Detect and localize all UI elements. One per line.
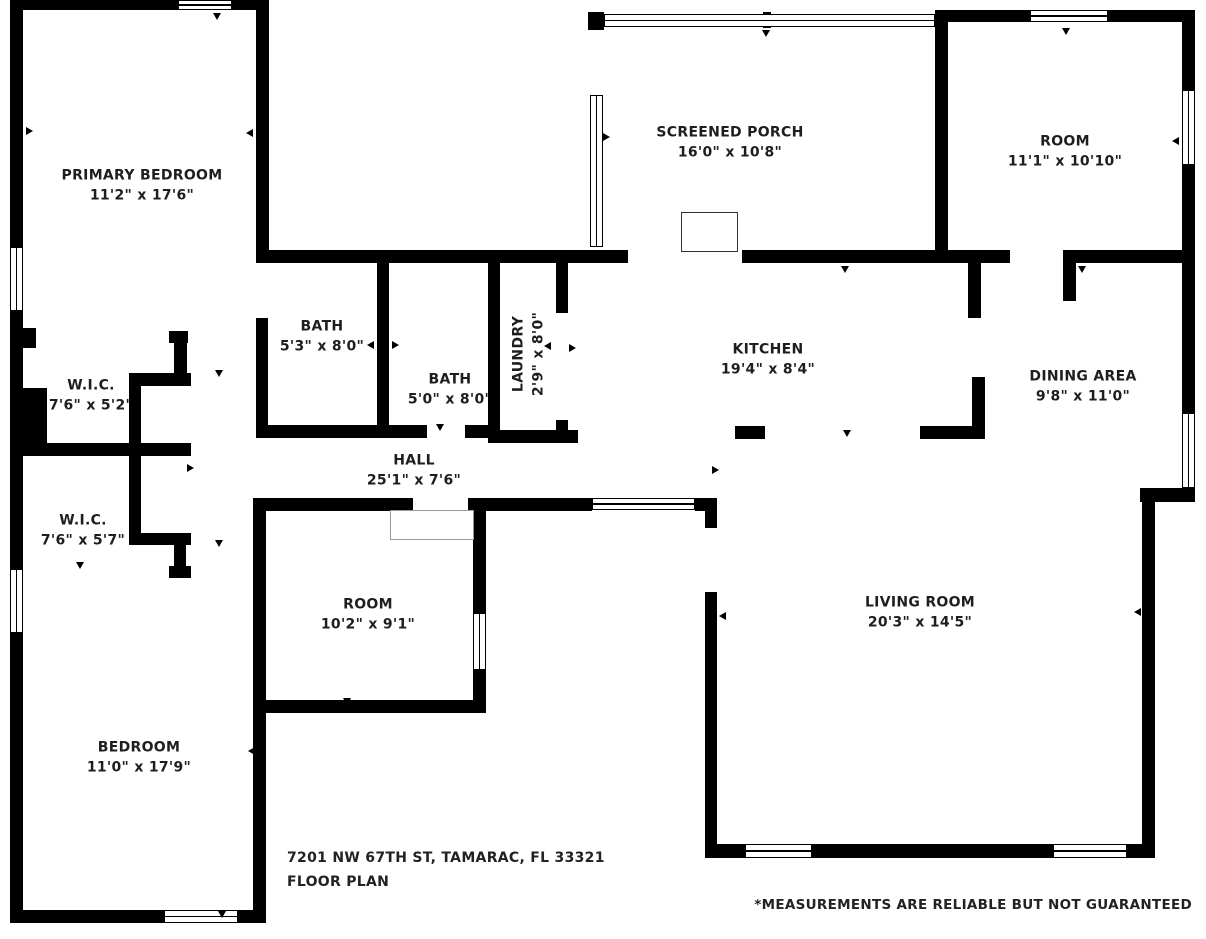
- door-marker: [392, 341, 399, 349]
- room-label-dining-area: DINING AREA 9'8" x 11'0": [1029, 367, 1136, 406]
- room-label-bath-1: BATH 5'3" x 8'0": [280, 317, 364, 356]
- plan-title: FLOOR PLAN: [287, 871, 605, 895]
- wall-segment: [377, 425, 427, 438]
- wall-segment: [129, 533, 191, 545]
- room-dims: 11'0" x 17'9": [87, 758, 191, 778]
- window: [10, 569, 23, 633]
- room-label-hall: HALL 25'1" x 7'6": [367, 451, 461, 490]
- wall-segment: [10, 0, 178, 10]
- wall-segment: [705, 592, 717, 858]
- door-marker: [248, 747, 255, 755]
- window: [178, 0, 232, 10]
- room-label-living-room: LIVING ROOM 20'3" x 14'5": [865, 593, 975, 632]
- door-marker: [215, 370, 223, 377]
- room-dims: 2'9" x 8'0": [529, 312, 549, 396]
- room-name: PRIMARY BEDROOM: [62, 166, 223, 186]
- door-marker: [1134, 608, 1141, 616]
- room-dims: 10'2" x 9'1": [321, 615, 415, 635]
- room-name: HALL: [393, 451, 435, 471]
- room-label-room-mid: ROOM 10'2" x 9'1": [321, 595, 415, 634]
- wall-segment: [465, 425, 488, 438]
- room-name: LIVING ROOM: [865, 593, 975, 613]
- wall-segment: [1140, 488, 1195, 502]
- window: [1053, 844, 1127, 858]
- room-name: SCREENED PORCH: [656, 123, 803, 143]
- wall-segment: [705, 498, 717, 528]
- room-label-screened-porch: SCREENED PORCH 16'0" x 10'8": [656, 123, 803, 162]
- wall-segment: [10, 448, 23, 569]
- wall-segment: [377, 263, 389, 430]
- door-marker: [246, 129, 253, 137]
- room-dims: 5'0" x 8'0": [408, 390, 492, 410]
- door-marker: [367, 341, 374, 349]
- wall-segment: [169, 566, 191, 578]
- wall-segment: [935, 10, 948, 250]
- room-dims: 7'6" x 5'2": [49, 396, 133, 416]
- wall-segment: [1142, 502, 1155, 857]
- room-label-laundry: LAUNDRY 2'9" x 8'0": [509, 312, 548, 396]
- room-dims: 20'3" x 14'5": [868, 613, 972, 633]
- room-label-bedroom: BEDROOM 11'0" x 17'9": [87, 738, 191, 777]
- door-marker: [1062, 28, 1070, 35]
- wall-segment: [920, 426, 985, 439]
- wall-segment: [1182, 263, 1195, 413]
- room-dims: 11'1" x 10'10": [1008, 152, 1122, 172]
- wall-segment: [1182, 10, 1195, 90]
- wall-segment: [253, 700, 266, 923]
- wall-segment: [256, 0, 269, 250]
- wall-segment: [253, 498, 413, 511]
- room-name: BATH: [429, 370, 472, 390]
- room-name: ROOM: [1040, 132, 1090, 152]
- door-marker: [712, 466, 719, 474]
- porch-step-outline: [681, 212, 738, 252]
- window: [745, 844, 812, 858]
- wall-segment: [253, 498, 266, 712]
- room-name: DINING AREA: [1029, 367, 1136, 387]
- wall-segment: [468, 498, 592, 511]
- wall-segment: [10, 910, 167, 923]
- floor-plan-canvas: PRIMARY BEDROOM 11'2" x 17'6" SCREENED P…: [0, 0, 1206, 939]
- door-marker: [522, 430, 530, 437]
- window: [473, 613, 486, 670]
- room-label-primary-bedroom: PRIMARY BEDROOM 11'2" x 17'6": [62, 166, 223, 205]
- room-label-kitchen: KITCHEN 19'4" x 8'4": [721, 340, 815, 379]
- window: [1182, 90, 1195, 165]
- room-label-room-top-right: ROOM 11'1" x 10'10": [1008, 132, 1122, 171]
- door-marker: [213, 13, 221, 20]
- room-name: KITCHEN: [733, 340, 804, 360]
- window: [592, 498, 695, 510]
- wall-segment: [488, 263, 500, 430]
- wall-segment: [473, 498, 486, 613]
- wall-segment: [10, 388, 47, 448]
- wall-segment: [948, 10, 1030, 22]
- wall-segment: [256, 425, 377, 438]
- room-dims: 16'0" x 10'8": [678, 143, 782, 163]
- room-name: W.I.C.: [67, 376, 115, 396]
- wall-segment: [1063, 250, 1195, 263]
- room-label-wic-2: W.I.C. 7'6" x 5'7": [41, 511, 125, 550]
- window: [10, 247, 23, 311]
- wall-segment: [253, 700, 486, 713]
- wall-segment: [10, 633, 23, 912]
- window: [164, 910, 238, 923]
- room-label-wic-1: W.I.C. 7'6" x 5'2": [49, 376, 133, 415]
- wall-segment: [10, 10, 23, 247]
- window: [1030, 10, 1108, 22]
- wall-segment: [488, 430, 578, 443]
- door-marker: [762, 30, 770, 37]
- wall-segment: [256, 318, 268, 437]
- wall-segment: [22, 328, 36, 348]
- wall-segment: [1182, 165, 1195, 263]
- wall-segment: [238, 910, 266, 923]
- closet-outline: [390, 510, 474, 540]
- wall-segment: [1063, 263, 1076, 301]
- room-dims: 5'3" x 8'0": [280, 337, 364, 357]
- wall-segment: [129, 373, 141, 545]
- room-name: ROOM: [343, 595, 393, 615]
- room-name: W.I.C.: [59, 511, 107, 531]
- address-line: 7201 NW 67TH ST, TAMARAC, FL 33321: [287, 847, 605, 871]
- door-marker: [941, 135, 948, 143]
- door-marker: [569, 344, 576, 352]
- wall-segment: [169, 331, 188, 343]
- door-marker: [218, 911, 226, 918]
- wall-segment: [968, 263, 981, 318]
- room-dims: 9'8" x 11'0": [1036, 387, 1130, 407]
- room-dims: 25'1" x 7'6": [367, 471, 461, 491]
- door-marker: [26, 127, 33, 135]
- door-marker: [318, 427, 326, 434]
- door-marker: [841, 266, 849, 273]
- door-marker: [259, 341, 266, 349]
- door-marker: [544, 342, 551, 350]
- window: [590, 95, 603, 247]
- address-block: 7201 NW 67TH ST, TAMARAC, FL 33321 FLOOR…: [287, 847, 605, 895]
- measurements-disclaimer: *MEASUREMENTS ARE RELIABLE BUT NOT GUARA…: [690, 897, 1192, 913]
- wall-segment: [735, 426, 765, 439]
- room-name: LAUNDRY: [509, 316, 529, 392]
- wall-segment: [935, 250, 1010, 263]
- wall-segment: [10, 311, 23, 391]
- door-marker: [603, 133, 610, 141]
- door-marker: [1078, 266, 1086, 273]
- door-marker: [719, 612, 726, 620]
- door-marker: [1172, 137, 1179, 145]
- wall-segment: [588, 12, 604, 30]
- room-dims: 19'4" x 8'4": [721, 360, 815, 380]
- wall-segment: [742, 250, 935, 263]
- wall-segment: [23, 443, 191, 456]
- room-dims: 11'2" x 17'6": [90, 186, 194, 206]
- door-marker: [76, 562, 84, 569]
- door-marker: [843, 430, 851, 437]
- room-name: BATH: [301, 317, 344, 337]
- door-marker: [436, 424, 444, 431]
- door-marker: [187, 464, 194, 472]
- window: [1182, 413, 1195, 488]
- door-marker: [343, 698, 351, 705]
- window: [604, 14, 935, 27]
- door-marker: [310, 503, 318, 510]
- wall-segment: [556, 263, 568, 313]
- room-dims: 7'6" x 5'7": [41, 531, 125, 551]
- door-marker: [215, 540, 223, 547]
- wall-segment: [256, 250, 628, 263]
- room-name: BEDROOM: [98, 738, 180, 758]
- room-label-bath-2: BATH 5'0" x 8'0": [408, 370, 492, 409]
